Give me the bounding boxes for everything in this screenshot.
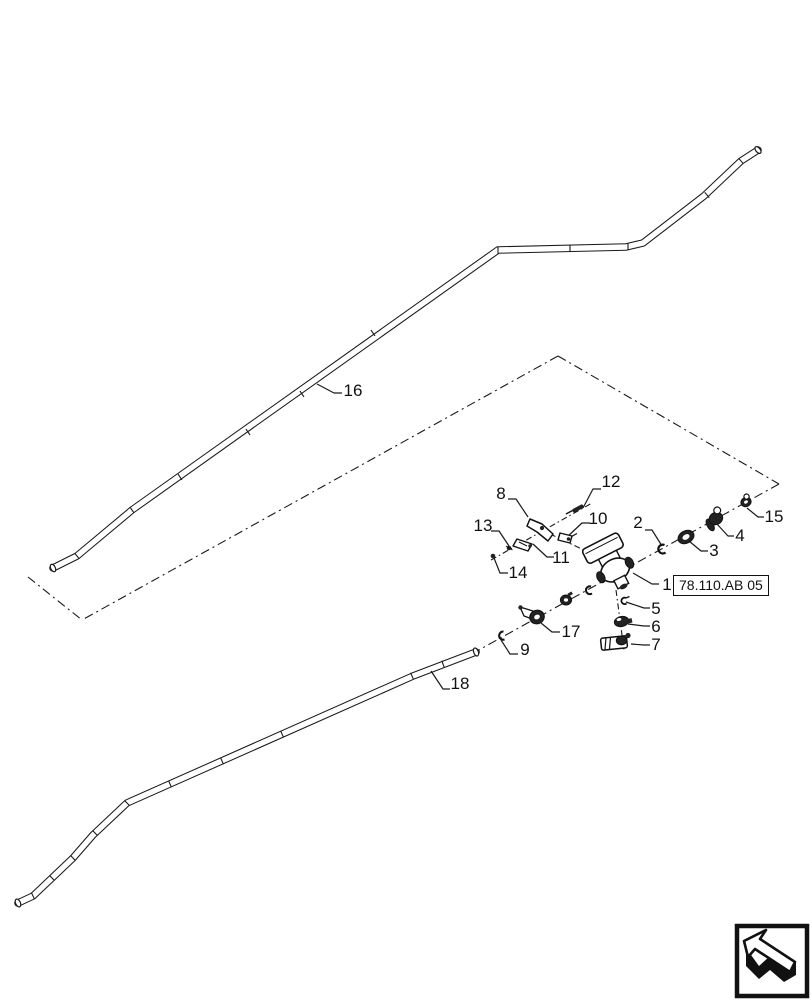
part-hose-barb-7 [600, 633, 630, 650]
callout-18: 18 [451, 674, 470, 694]
part-clamp-ring [560, 591, 573, 605]
part-screw-14 [491, 554, 496, 559]
lower-boom-tube [14, 647, 480, 908]
part-retaining-clip-9 [499, 631, 504, 639]
parts-diagram-page: 1 2 3 4 5 6 7 8 9 10 11 12 13 14 15 16 1… [0, 0, 812, 1000]
part-clamp-half-10 [558, 533, 577, 543]
upper-boom-tube [49, 146, 762, 573]
callout-13: 13 [474, 516, 493, 536]
callout-15: 15 [765, 507, 784, 527]
part-clamp-plate-11 [513, 539, 532, 551]
callout-7: 7 [651, 635, 660, 655]
callout-17: 17 [562, 622, 581, 642]
part-retainer-nut-15 [738, 493, 753, 508]
back-arrow-icon[interactable] [737, 926, 807, 996]
callout-9: 9 [520, 640, 529, 660]
callout-leader-lines [317, 384, 764, 689]
callout-14: 14 [509, 563, 528, 583]
part-oring-3 [676, 528, 697, 547]
callout-11: 11 [552, 548, 570, 568]
callout-10: 10 [589, 509, 608, 529]
callout-12: 12 [602, 472, 621, 492]
tube-joint-ticks [32, 661, 445, 900]
callout-2: 2 [633, 513, 642, 533]
callout-4: 4 [735, 526, 744, 546]
callout-8: 8 [496, 484, 505, 504]
callout-3: 3 [709, 541, 718, 561]
section-reference-box[interactable]: 78.110.AB 05 [673, 575, 769, 596]
callout-5: 5 [651, 599, 660, 619]
callout-6: 6 [651, 617, 660, 637]
diagram-canvas [0, 0, 812, 1000]
callout-16: 16 [344, 381, 363, 401]
part-cap-nut-6 [613, 615, 632, 628]
callout-1: 1 [662, 575, 671, 595]
part-nozzle-cap-17 [518, 605, 546, 626]
part-elbow-fitting-4 [701, 506, 727, 532]
tube-joint-ticks [75, 158, 744, 558]
